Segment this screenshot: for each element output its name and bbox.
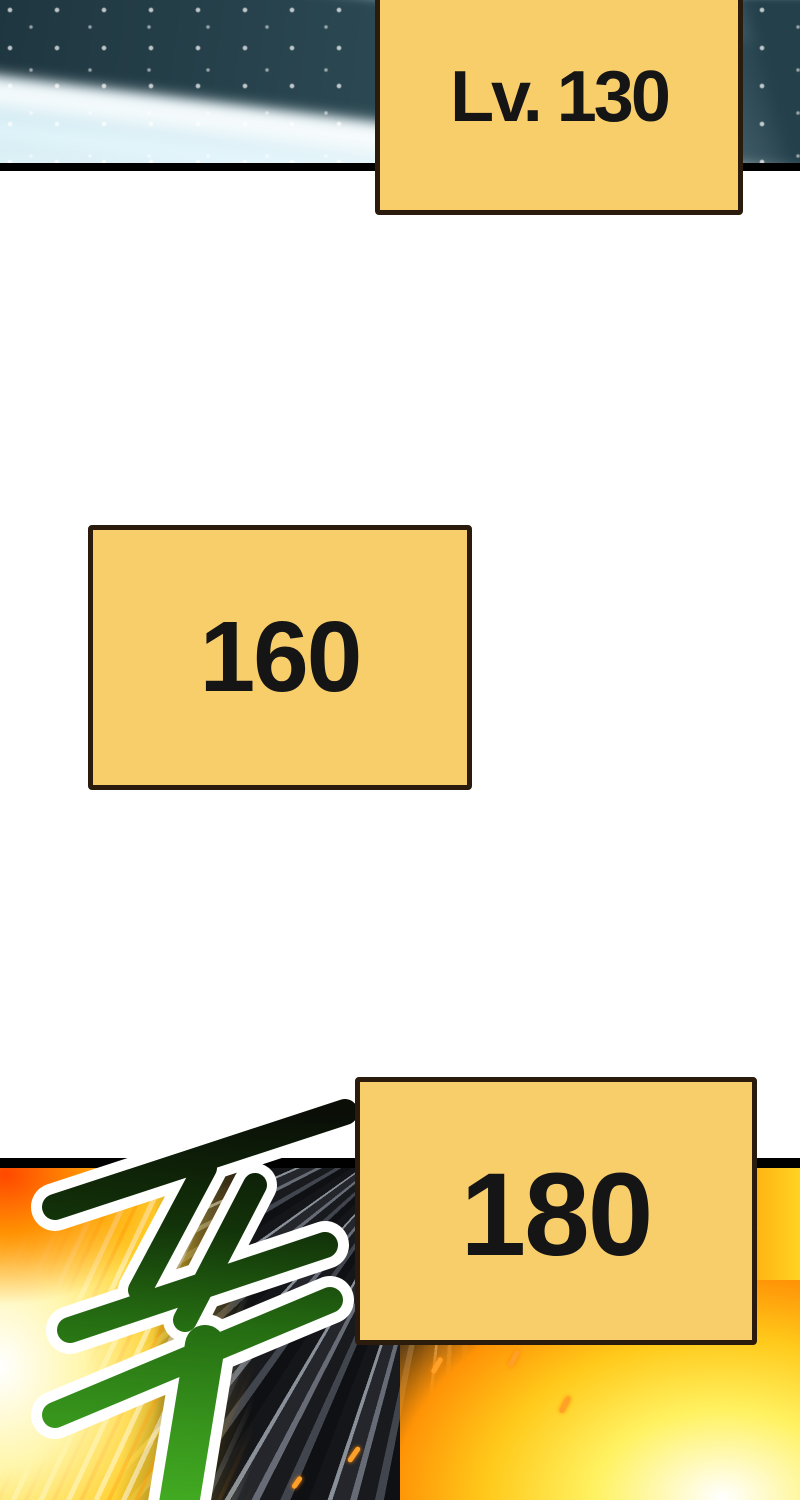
level-badge-180-label: 180 xyxy=(461,1147,652,1283)
level-badge-130-label: Lv. 130 xyxy=(450,56,668,138)
comic-page: Lv. 130 160 180 xyxy=(0,0,800,1500)
sfx-glyph xyxy=(20,1085,380,1500)
level-badge-180: 180 xyxy=(355,1077,757,1345)
level-badge-160-label: 160 xyxy=(200,600,361,715)
level-badge-160: 160 xyxy=(88,525,472,790)
level-badge-130: Lv. 130 xyxy=(375,0,743,215)
